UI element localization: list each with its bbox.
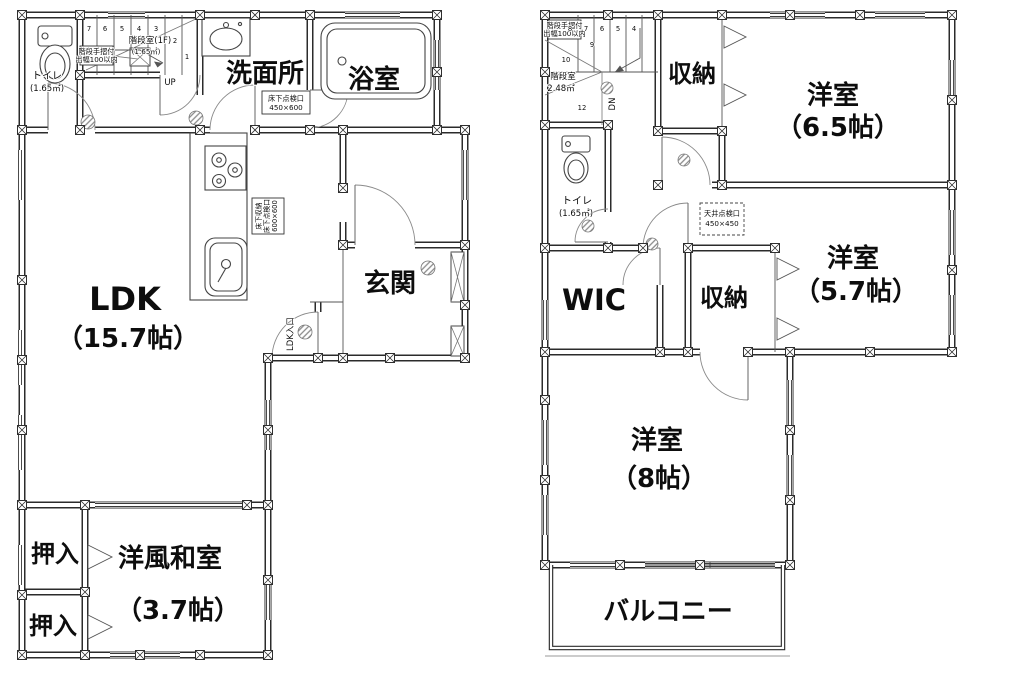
underfloor-storage-line3: 600×600 [271, 200, 279, 232]
step-number: 4 [137, 25, 141, 33]
walls-2f [545, 15, 952, 656]
step-number: 12 [578, 104, 587, 112]
room-label-washroom: 洗面所 [226, 59, 304, 89]
room-label-closet-mid: 収納 [700, 284, 748, 312]
closet-door-marks-1f [88, 545, 112, 639]
dn-label: DN [608, 98, 618, 111]
room-label-balcony: バルコニー [603, 597, 732, 627]
stairwell-1f-label: 階段室(1F) [129, 35, 171, 46]
room-label-bathroom: 浴室 [348, 64, 400, 95]
underfloor-storage-box: 床下収納 床下点検口 600×600 [252, 198, 284, 234]
step-number: 4 [632, 25, 636, 33]
toilet-2f-label: トイレ [562, 196, 592, 207]
step-number: 9 [590, 41, 594, 49]
step-number: 10 [562, 56, 571, 64]
stairwell-2f-label: 階段室 [550, 71, 576, 82]
step-number: 5 [616, 25, 620, 33]
underfloor-storage-line2: 床下点検口 [262, 199, 271, 233]
floorplan-drawing: 階段手摺付 出幅100以内 7 6 5 4 3 2 1 UP 階段室(1F) (… [0, 0, 1024, 675]
step-number: 3 [154, 25, 158, 33]
room-area-ldk: （15.7帖） [57, 324, 199, 354]
step-number: 6 [600, 25, 604, 33]
floor-hatch-box-1f: 床下点検口 450×600 [262, 91, 310, 114]
ldk-entry-label: LDK入口 [286, 317, 296, 351]
step-number: 7 [87, 25, 91, 33]
room-label-entrance: 玄関 [364, 268, 416, 299]
room-label-wic: WIC [562, 283, 626, 317]
room-area-bedroom8: （8帖） [611, 464, 707, 494]
stair-post-mark [601, 82, 613, 94]
stairwell-1f-area: (1.65㎡) [132, 47, 161, 56]
toilet-1f-area: (1.65㎡) [30, 84, 64, 94]
room-label-closet-top: 収納 [668, 60, 716, 88]
up-label: UP [164, 78, 175, 88]
step-number: 6 [103, 25, 107, 33]
entrance-details-1f [310, 245, 464, 358]
vanity-sink-1f [202, 18, 250, 56]
room-area-japanese-room: （3.7帖） [116, 596, 240, 626]
room-label-ldk: LDK [89, 280, 162, 318]
step-number: 7 [584, 25, 588, 33]
ceiling-hatch-box-2f: 天井点検口 450×450 [700, 203, 744, 235]
stairwell-2f-area: 2.48㎡ [547, 84, 575, 94]
floor-hatch-line2: 450×600 [269, 103, 303, 112]
stair-note-2f-line2: 出幅100以内 [543, 29, 585, 38]
room-label-closet-upper: 押入 [31, 540, 79, 568]
room-label-bedroom8: 洋室 [631, 425, 683, 456]
floor-hatch-line1: 床下点検口 [268, 94, 304, 103]
toilet-2f-area: (1.65㎡) [559, 209, 593, 219]
room-label-bedroom65: 洋室 [807, 80, 859, 111]
ceiling-hatch-line1: 天井点検口 [704, 209, 740, 218]
underfloor-storage-line1: 床下収納 [254, 202, 263, 229]
toilet-1f-label: トイレ [32, 71, 62, 82]
step-number: 2 [173, 37, 177, 45]
stair-note-1f-line2: 出幅100以内 [75, 55, 117, 64]
stairs-2f: 階段手摺付 出幅100以内 8 7 6 5 4 9 10 12 階段室 2.48… [543, 15, 658, 125]
room-area-bedroom57: （5.7帖） [794, 277, 918, 307]
kitchen-counter-1f [190, 133, 247, 300]
room-label-closet-lower: 押入 [29, 612, 77, 640]
step-number: 1 [185, 53, 189, 61]
pivot-circles-2f [582, 154, 690, 250]
floor2-plan: 階段手摺付 出幅100以内 8 7 6 5 4 9 10 12 階段室 2.48… [541, 11, 957, 657]
floorplan-canvas: 階段手摺付 出幅100以内 7 6 5 4 3 2 1 UP 階段室(1F) (… [0, 0, 1024, 675]
floor1-plan: 階段手摺付 出幅100以内 7 6 5 4 3 2 1 UP 階段室(1F) (… [18, 11, 470, 660]
room-area-bedroom65: （6.5帖） [776, 113, 900, 143]
room-label-bedroom57: 洋室 [827, 243, 879, 274]
toilet-fixture-2f [562, 136, 590, 183]
step-number: 8 [568, 25, 572, 33]
ceiling-hatch-line2: 450×450 [705, 219, 739, 228]
room-label-japanese-room: 洋風和室 [118, 543, 222, 574]
step-number: 5 [120, 25, 124, 33]
